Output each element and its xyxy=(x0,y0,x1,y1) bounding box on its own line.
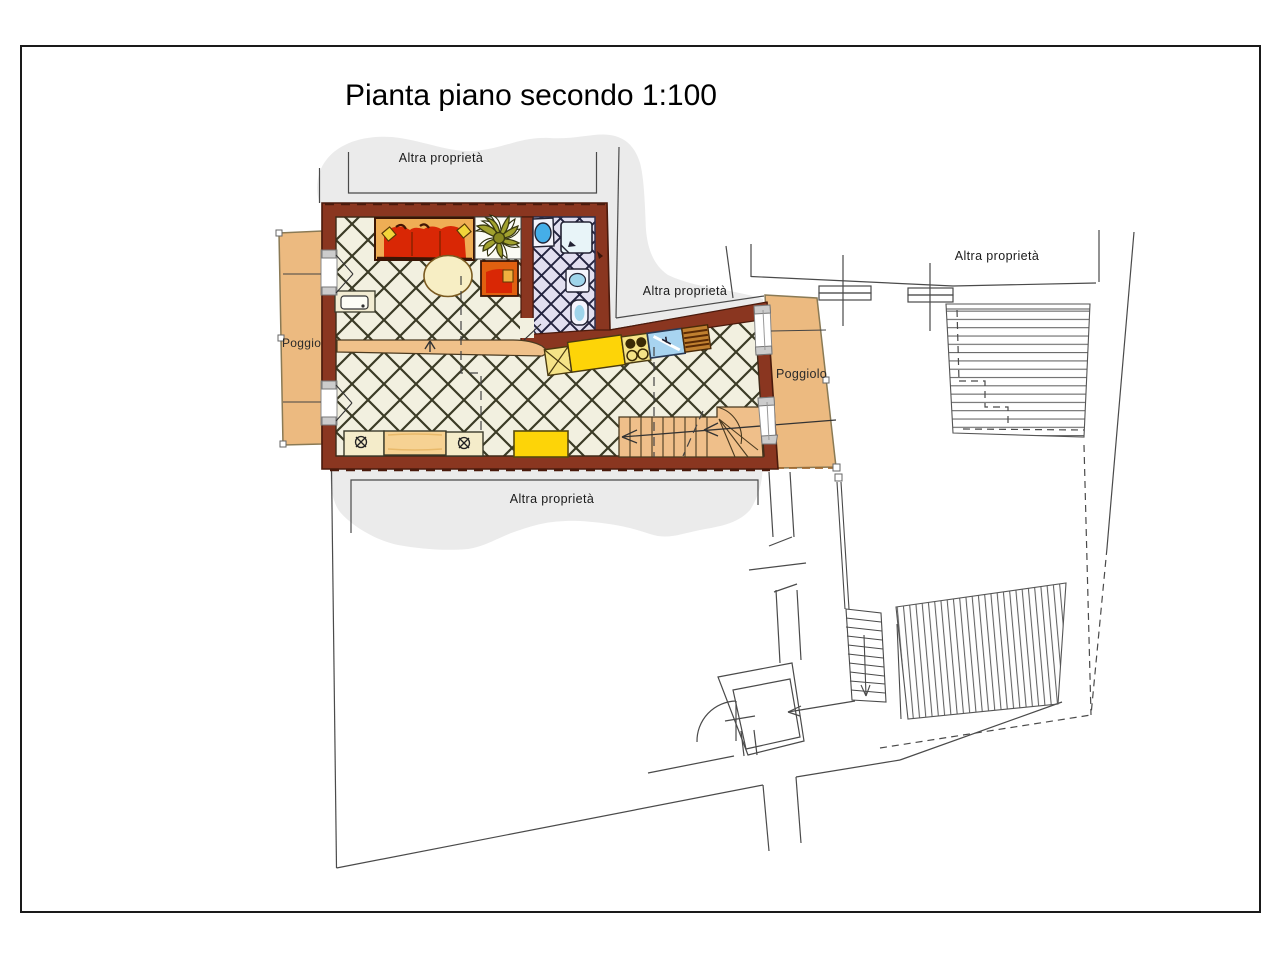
svg-text:Altra proprietà: Altra proprietà xyxy=(643,284,728,298)
svg-text:Altra proprietà: Altra proprietà xyxy=(510,492,595,506)
svg-text:Poggiolo: Poggiolo xyxy=(776,367,827,381)
svg-text:Pianta piano secondo 1:100: Pianta piano secondo 1:100 xyxy=(345,79,717,112)
svg-text:Altra proprietà: Altra proprietà xyxy=(399,151,484,165)
svg-text:Altra proprietà: Altra proprietà xyxy=(955,249,1040,263)
